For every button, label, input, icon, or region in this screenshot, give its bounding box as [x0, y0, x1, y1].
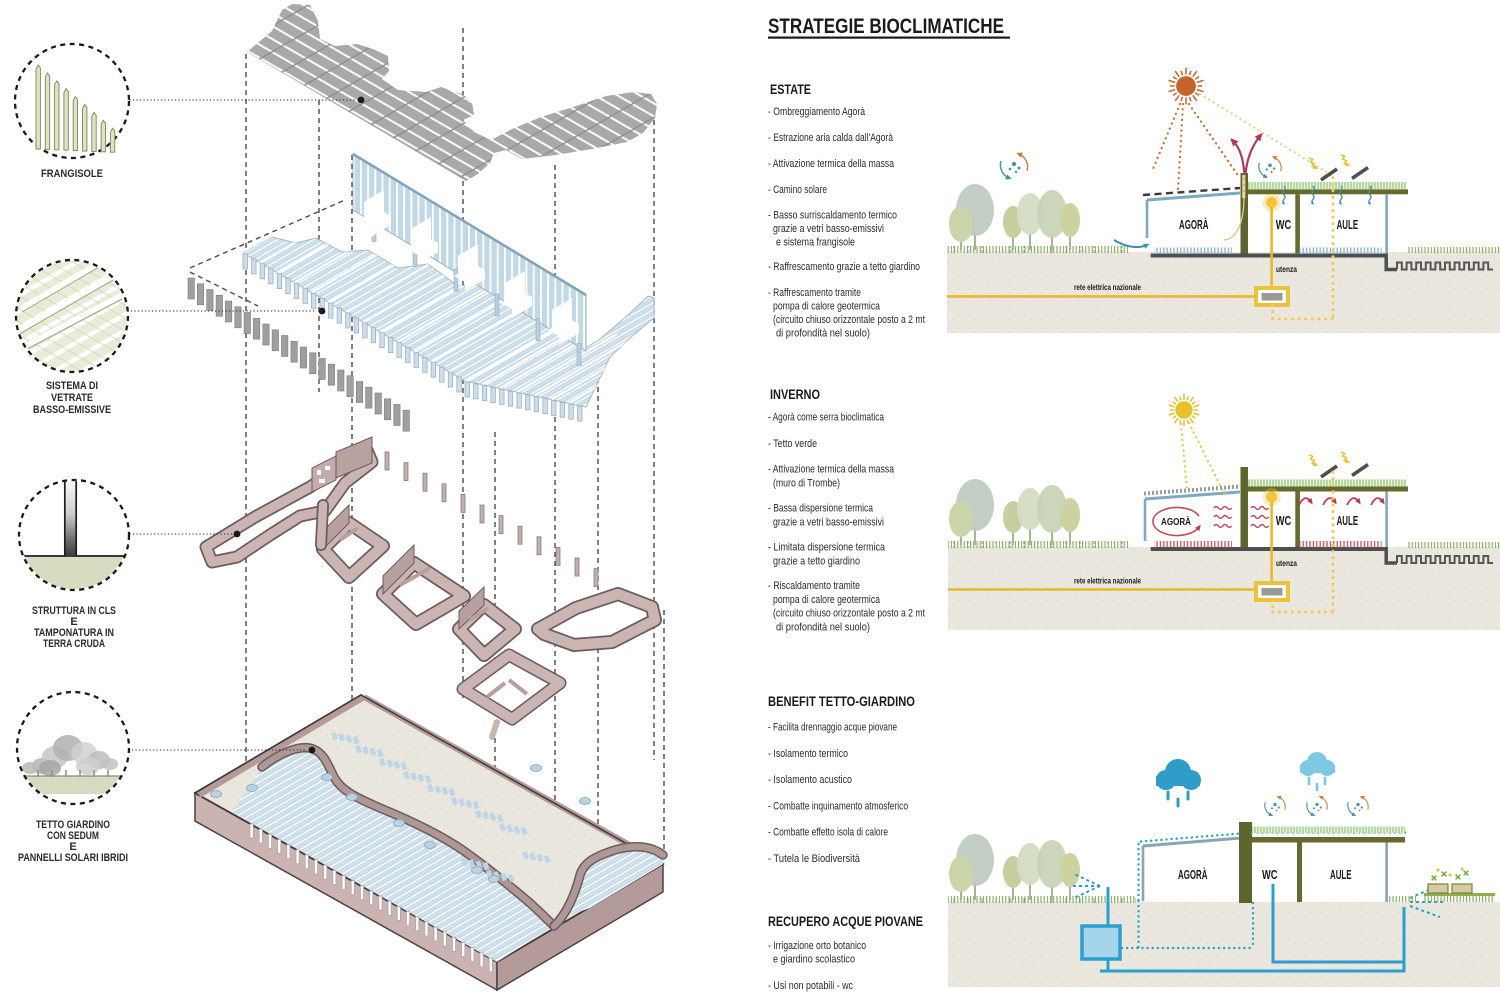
svg-text:- Irrigazione orto botanico: - Irrigazione orto botanico: [768, 940, 866, 952]
svg-text:e giardino scolastico: e giardino scolastico: [773, 954, 855, 966]
svg-text:- Isolamento termico: - Isolamento termico: [768, 748, 848, 760]
svg-text:rete elettrica nazionale: rete elettrica nazionale: [1074, 576, 1141, 586]
svg-text:- Attivazione termica della ma: - Attivazione termica della massa: [768, 158, 895, 170]
svg-text:BASSO-EMISSIVE: BASSO-EMISSIVE: [33, 404, 111, 416]
svg-text:RECUPERO ACQUE PIOVANE: RECUPERO ACQUE PIOVANE: [768, 914, 923, 929]
svg-text:- Agorà come serra bioclimatic: - Agorà come serra bioclimatica: [768, 412, 885, 424]
svg-text:rete elettrica nazionale: rete elettrica nazionale: [1074, 282, 1141, 292]
svg-text:AGORÀ: AGORÀ: [1178, 867, 1208, 882]
svg-text:PANNELLI SOLARI IBRIDI: PANNELLI SOLARI IBRIDI: [18, 852, 128, 864]
svg-text:- Ombreggiamento Agorà: - Ombreggiamento Agorà: [768, 106, 866, 118]
svg-text:STRATEGIE BIOCLIMATICHE: STRATEGIE BIOCLIMATICHE: [768, 15, 1004, 38]
svg-text:- Tutela le Biodiversità: - Tutela le Biodiversità: [768, 853, 861, 865]
svg-text:- Tetto verde: - Tetto verde: [768, 438, 817, 450]
svg-text:- Usi non potabili - wc: - Usi non potabili - wc: [768, 980, 853, 992]
svg-text:AGORÀ: AGORÀ: [1161, 515, 1191, 528]
svg-text:WC: WC: [1262, 868, 1278, 882]
svg-text:AULE: AULE: [1337, 218, 1359, 232]
svg-text:(muro di Trombe): (muro di Trombe): [773, 477, 840, 489]
svg-text:di profondità nel suolo): di profondità nel suolo): [776, 621, 870, 633]
svg-text:FRANGISOLE: FRANGISOLE: [41, 168, 103, 180]
svg-text:- Raffrescamento grazie a tett: - Raffrescamento grazie a tetto giardino: [768, 261, 920, 273]
svg-text:- Combatte effetto isola di ca: - Combatte effetto isola di calore: [768, 827, 888, 839]
svg-text:utenza: utenza: [1276, 558, 1297, 568]
svg-text:INVERNO: INVERNO: [770, 387, 820, 402]
svg-text:pompa di calore geotermica: pompa di calore geotermica: [773, 301, 881, 313]
svg-text:AULE: AULE: [1337, 514, 1359, 528]
svg-text:WC: WC: [1276, 218, 1292, 232]
svg-text:utenza: utenza: [1276, 264, 1297, 274]
svg-text:(circuito chiuso orizzontale p: (circuito chiuso orizzontale posto a 2 m…: [773, 608, 925, 620]
svg-text:AGORÀ: AGORÀ: [1179, 217, 1209, 232]
svg-text:BENEFIT TETTO-GIARDINO: BENEFIT TETTO-GIARDINO: [768, 694, 915, 709]
svg-text:SISTEMA DI: SISTEMA DI: [46, 380, 98, 392]
svg-text:- Raffrescamento tramite: - Raffrescamento tramite: [768, 287, 861, 299]
svg-text:grazie a vetri basso-emissivi: grazie a vetri basso-emissivi: [773, 223, 884, 235]
svg-text:pompa di calore geotermica: pompa di calore geotermica: [773, 594, 881, 606]
svg-text:- Riscaldamento tramite: - Riscaldamento tramite: [768, 580, 860, 592]
svg-text:di profondità nel suolo): di profondità nel suolo): [776, 328, 870, 340]
svg-text:grazie a tetto giardino: grazie a tetto giardino: [773, 555, 860, 567]
svg-text:VETRATE: VETRATE: [51, 392, 93, 404]
svg-text:- Facilita drennaggio acque pi: - Facilita drennaggio acque piovane: [768, 722, 897, 734]
svg-text:ESTATE: ESTATE: [770, 82, 811, 97]
svg-text:- Isolamento acustico: - Isolamento acustico: [768, 774, 852, 786]
svg-text:- Bassa dispersione termica: - Bassa dispersione termica: [768, 503, 874, 515]
svg-text:TERRA CRUDA: TERRA CRUDA: [43, 638, 105, 650]
svg-text:e sistema frangisole: e sistema frangisole: [776, 237, 855, 249]
svg-text:- Basso surriscaldamento termi: - Basso surriscaldamento termico: [768, 210, 897, 222]
svg-text:- Attivazione termica della ma: - Attivazione termica della massa: [768, 464, 895, 476]
svg-text:WC: WC: [1276, 514, 1292, 528]
svg-text:(circuito chiuso orizzontale p: (circuito chiuso orizzontale posto a 2 m…: [773, 314, 925, 326]
svg-text:- Limitata dispersione termica: - Limitata dispersione termica: [768, 542, 886, 554]
svg-text:- Combatte inquinamento atmosf: - Combatte inquinamento atmosferico: [768, 800, 908, 812]
svg-text:- Camino solare: - Camino solare: [768, 184, 827, 196]
svg-text:AULE: AULE: [1330, 868, 1352, 882]
svg-text:- Estrazione aria calda dall'A: - Estrazione aria calda dall'Agorà: [768, 132, 894, 144]
svg-text:grazie a vetri basso-emissivi: grazie a vetri basso-emissivi: [773, 516, 884, 528]
